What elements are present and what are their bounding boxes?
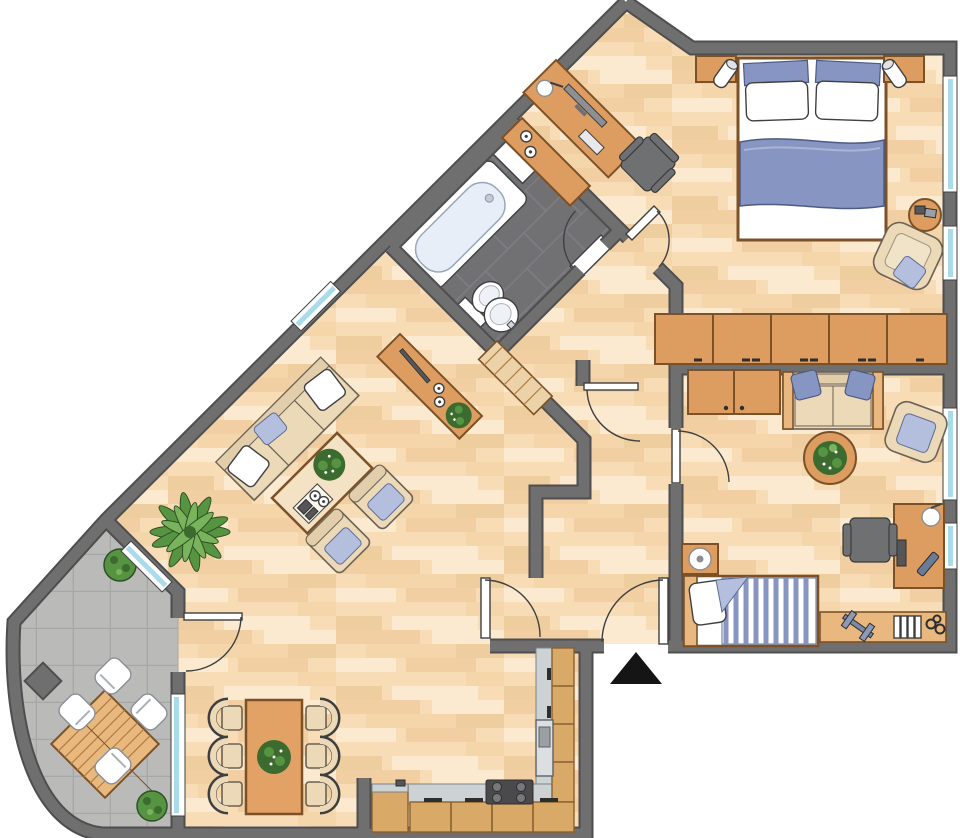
dining-table-plant [257,740,291,774]
bedroom-side-table [909,199,941,231]
two-seat-sofa [783,369,883,429]
cabinets-bottom [410,800,574,832]
entrance-arrow [610,652,662,684]
plant-table [804,432,856,484]
bedroom-window-1 [943,76,957,192]
floor-plan [0,0,960,838]
wardrobe [688,370,780,414]
terrace-plant-bottom [137,791,167,821]
double-bed [738,58,886,240]
bedroom2-desk [894,504,944,588]
oven [536,720,553,776]
bedroom2-chair [843,518,897,562]
bedroom2-nightstand [682,544,718,574]
books-icon [894,616,921,638]
dining-table [246,700,302,814]
closet-row [655,314,947,364]
dining-terrace-window [171,694,185,816]
low-shelf [820,609,946,643]
side-cabinet [372,780,408,832]
bedroom2-window-2 [943,523,957,569]
cooktop [486,780,533,804]
single-bed [684,576,818,646]
floor-plan-svg [0,0,960,838]
bedroom-window-2 [943,226,957,280]
